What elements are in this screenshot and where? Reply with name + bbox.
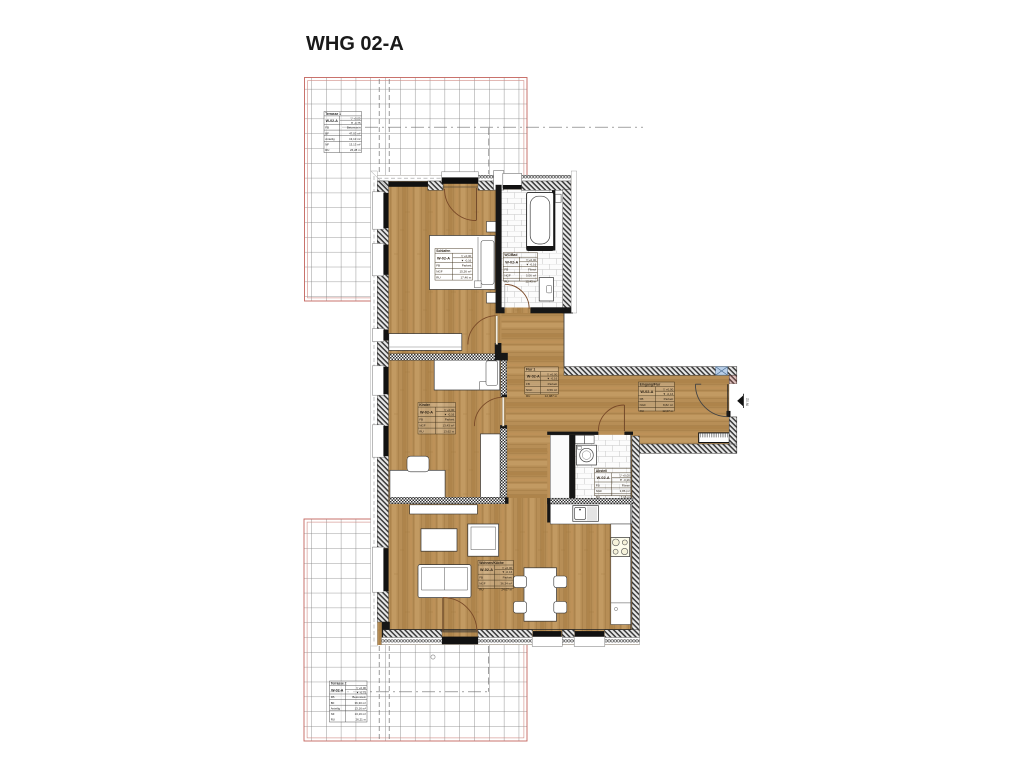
svg-text:▼ -0,75: ▼ -0,75	[351, 121, 361, 125]
svg-text:FB: FB	[479, 576, 483, 580]
svg-text:RU: RU	[331, 718, 335, 722]
svg-text:FB: FB	[526, 382, 530, 386]
svg-text:▽ +0,00: ▽ +0,00	[502, 566, 513, 570]
svg-text:RU: RU	[436, 276, 440, 280]
svg-text:W-02-A: W-02-A	[527, 375, 540, 379]
svg-text:▼ -0,16: ▼ -0,16	[526, 262, 537, 266]
svg-text:▽ +0,00: ▽ +0,00	[663, 387, 674, 391]
svg-text:WHG 02-A: WHG 02-A	[306, 33, 404, 55]
svg-text:3,86 m²: 3,86 m²	[620, 489, 630, 493]
svg-text:BF: BF	[325, 131, 329, 135]
svg-text:13,13 m²: 13,13 m²	[349, 137, 360, 141]
svg-text:Abstell: Abstell	[596, 469, 607, 473]
svg-text:12,987 m: 12,987 m	[545, 394, 558, 398]
svg-text:W-02-A: W-02-A	[640, 390, 653, 394]
svg-text:5,06 m²: 5,06 m²	[526, 274, 536, 278]
svg-text:9,59 m²: 9,59 m²	[547, 388, 557, 392]
svg-text:24,07 m: 24,07 m	[501, 587, 512, 591]
svg-text:FB: FB	[640, 397, 644, 401]
svg-text:26,28 m: 26,28 m	[350, 148, 361, 152]
svg-text:W-02-A: W-02-A	[505, 260, 518, 264]
svg-text:▼ -0,16: ▼ -0,16	[461, 258, 472, 262]
svg-text:▼ -0,16: ▼ -0,16	[444, 412, 455, 416]
svg-text:W-02-A: W-02-A	[326, 119, 339, 123]
svg-text:Flur 1: Flur 1	[526, 368, 535, 372]
svg-text:▽ +0,00: ▽ +0,00	[526, 258, 537, 262]
svg-text:WC/Bad: WC/Bad	[504, 253, 517, 257]
svg-text:36,30 m²: 36,30 m²	[355, 701, 366, 705]
svg-text:RU: RU	[504, 280, 508, 284]
svg-text:NGF: NGF	[419, 424, 426, 428]
svg-text:NF: NF	[325, 143, 329, 147]
svg-text:Parkett: Parkett	[503, 576, 513, 580]
svg-text:47,03 m²: 47,03 m²	[349, 131, 360, 135]
svg-text:8,82 m²: 8,82 m²	[663, 403, 673, 407]
svg-text:Fliese: Fliese	[528, 268, 536, 272]
svg-text:▼ -0,75: ▼ -0,75	[356, 690, 366, 694]
svg-text:7,16 m: 7,16 m	[621, 495, 631, 499]
svg-text:FB: FB	[504, 268, 508, 272]
svg-text:RU: RU	[526, 394, 530, 398]
svg-text:BF: BF	[331, 701, 335, 705]
svg-text:W-02-A: W-02-A	[480, 568, 493, 572]
svg-text:▼ -0,16: ▼ -0,16	[620, 478, 631, 482]
svg-text:RU: RU	[419, 429, 423, 433]
svg-text:NGF: NGF	[436, 270, 443, 274]
svg-text:▽ +0,00: ▽ +0,00	[547, 372, 558, 376]
svg-text:NGF: NGF	[640, 403, 647, 407]
svg-text:Wohnen/Küche: Wohnen/Küche	[479, 561, 504, 565]
svg-text:17,46 m: 17,46 m	[460, 276, 471, 280]
svg-text:FB: FB	[596, 483, 600, 487]
svg-text:W 02: W 02	[746, 398, 750, 406]
svg-text:NGF: NGF	[504, 274, 511, 278]
svg-text:Parkett: Parkett	[462, 264, 472, 268]
svg-text:RU: RU	[479, 587, 483, 591]
svg-text:▼ -0,16: ▼ -0,16	[663, 392, 674, 396]
svg-text:W-02-A: W-02-A	[437, 256, 450, 260]
svg-text:NF: NF	[331, 712, 335, 716]
svg-text:W-02-A: W-02-A	[420, 410, 433, 414]
svg-text:Kinder: Kinder	[419, 403, 430, 407]
svg-text:Betonstein: Betonstein	[352, 695, 366, 699]
svg-text:NGF: NGF	[479, 581, 486, 585]
svg-text:W-02-A: W-02-A	[597, 476, 610, 480]
svg-text:NGF: NGF	[596, 489, 603, 493]
svg-text:Parkett: Parkett	[445, 418, 455, 422]
svg-text:W-02-A: W-02-A	[331, 688, 344, 692]
svg-text:▼ -0,16: ▼ -0,16	[502, 570, 513, 574]
svg-text:FB: FB	[436, 264, 440, 268]
svg-text:FB: FB	[331, 695, 335, 699]
svg-text:12,07 m: 12,07 m	[662, 409, 673, 413]
svg-text:▽ +0,00: ▽ +0,00	[619, 474, 630, 478]
svg-text:13,16 m²: 13,16 m²	[355, 712, 366, 716]
svg-text:12,45 m: 12,45 m	[525, 280, 536, 284]
svg-text:RU: RU	[640, 409, 644, 413]
svg-text:Terrasse 2: Terrasse 2	[331, 681, 347, 685]
svg-text:▼ -0,16: ▼ -0,16	[547, 377, 558, 381]
svg-text:36,34 m²: 36,34 m²	[500, 581, 512, 585]
svg-text:26,21 m: 26,21 m	[356, 718, 367, 722]
svg-text:Anteilig: Anteilig	[325, 137, 335, 141]
svg-text:13,13 m²: 13,13 m²	[349, 143, 360, 147]
svg-text:Schlafen: Schlafen	[436, 249, 450, 253]
svg-text:Anteilig: Anteilig	[331, 706, 341, 710]
svg-text:Betonstein: Betonstein	[347, 126, 361, 130]
svg-text:RU: RU	[325, 148, 329, 152]
svg-text:▽ +0,00: ▽ +0,00	[444, 408, 455, 412]
svg-text:Eingang/Flur: Eingang/Flur	[640, 383, 661, 387]
svg-text:Parkett: Parkett	[664, 397, 674, 401]
svg-text:13,43 m²: 13,43 m²	[442, 424, 454, 428]
svg-text:15,26 m²: 15,26 m²	[459, 270, 471, 274]
svg-text:RU: RU	[596, 495, 600, 499]
svg-text:Fliese: Fliese	[622, 483, 630, 487]
svg-text:▽ +0,00: ▽ +0,00	[461, 254, 472, 258]
svg-text:13,62 m: 13,62 m	[443, 429, 454, 433]
svg-text:Terrasse 1: Terrasse 1	[325, 112, 341, 116]
svg-text:NGF: NGF	[526, 388, 533, 392]
svg-text:Parkett: Parkett	[548, 382, 558, 386]
svg-text:FB: FB	[325, 126, 329, 130]
svg-text:13,16 m²: 13,16 m²	[355, 706, 366, 710]
svg-text:FB: FB	[419, 418, 423, 422]
